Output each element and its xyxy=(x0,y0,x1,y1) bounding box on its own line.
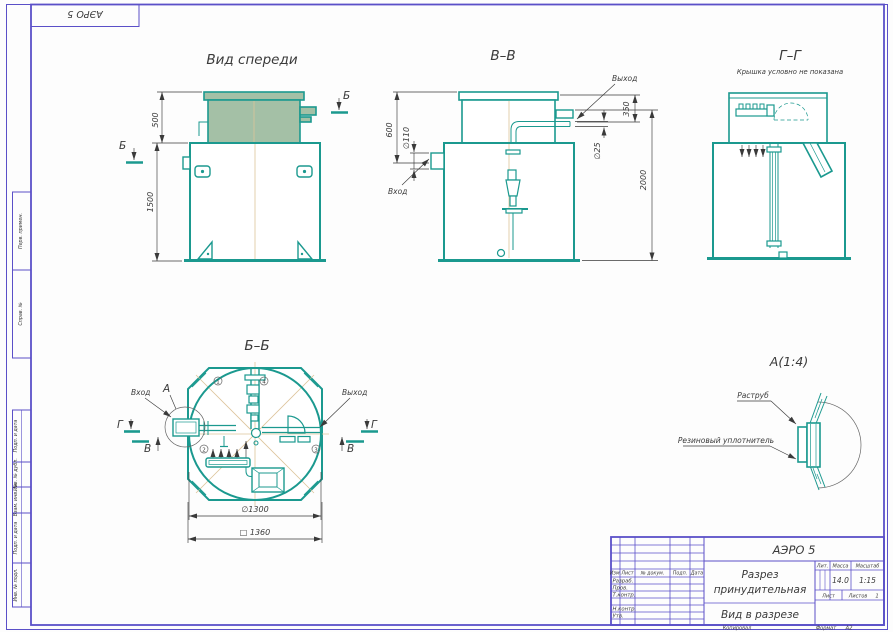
section-mark-b-right: Б xyxy=(343,90,350,102)
format-label: Формат xyxy=(816,626,837,632)
listov-label: Листов xyxy=(848,594,868,600)
front-dim-500: 500 xyxy=(151,112,160,127)
titleblock-name-line1: Разрез xyxy=(741,569,778,581)
row-razrab: Разраб. xyxy=(613,579,634,585)
vv-outlet-label: Выход xyxy=(612,74,637,83)
sheet-svg: АЭРО 5 Перв. примен. Справ. № Подп. и да… xyxy=(0,0,893,632)
mark-g-right: Г xyxy=(371,419,378,431)
vv-dim-d110: ∅110 xyxy=(402,127,411,149)
detail-a-title: А(1:4) xyxy=(769,354,808,369)
listov-value: 1 xyxy=(875,594,878,600)
callout-3: 2 xyxy=(202,448,206,454)
bb-dim-1360: □ 1360 xyxy=(240,528,270,537)
view-section-vv: В–В 600 ∅110 350 xyxy=(385,48,658,261)
margin-label: Справ. № xyxy=(18,302,24,325)
b b-detail-mark-a: А xyxy=(162,383,170,395)
list-label: Лист xyxy=(821,594,836,600)
top-stamp-text: АЭРО 5 xyxy=(67,8,103,19)
mark-g-left: Г xyxy=(117,419,124,431)
titleblock-view-name: Вид в разрезе xyxy=(721,609,799,621)
detail-seal-label: Резиновый уплотнитель xyxy=(678,436,774,445)
margin-label: Перв. примен. xyxy=(18,213,24,249)
masshtab-label: Масштаб xyxy=(856,564,880,570)
title-block: АЭРО 5 Разрез принудительная Вид в разре… xyxy=(610,537,884,632)
bb-inlet-label: Вход xyxy=(131,388,150,397)
callout-1: 1 xyxy=(216,380,220,386)
vv-dim-350: 350 xyxy=(622,101,631,116)
margin-label: Инв. № подл. xyxy=(13,568,19,601)
titleblock-doc-name: АЭРО 5 xyxy=(772,543,816,557)
lit-label: Лит. xyxy=(816,564,829,570)
margin-label: Подп. и дата xyxy=(13,420,19,453)
col-doc: № докум. xyxy=(640,571,665,577)
view-section-bb-plan: Б–Б xyxy=(117,338,378,543)
kopiroval-label: Копировал xyxy=(723,626,752,632)
view-front: Вид спереди 500 1500 Б Б xyxy=(119,52,350,261)
view-section-gg: Г–Г Крышка условно не показана xyxy=(707,48,851,259)
row-nkontr: Н.контр. xyxy=(613,607,637,613)
mark-v-right: В xyxy=(347,443,354,455)
mark-v-left: В xyxy=(144,443,151,455)
vv-dim-600: 600 xyxy=(385,122,394,137)
vv-inlet-label: Вход xyxy=(388,187,407,196)
callout-2: 4 xyxy=(262,380,266,386)
row-prov: Пров. xyxy=(613,586,628,592)
drawing-sheet: АЭРО 5 Перв. примен. Справ. № Подп. и да… xyxy=(0,0,893,632)
section-mark-b-left: Б xyxy=(119,140,126,152)
margin-column: Перв. примен. Справ. № Подп. и дата Инв.… xyxy=(13,192,32,607)
vv-dim-2000: 2000 xyxy=(639,170,648,190)
col-list: Лист xyxy=(620,571,633,577)
bb-title: Б–Б xyxy=(244,338,269,354)
col-data: Дата xyxy=(690,571,703,577)
margin-label: Взам. инв. № xyxy=(13,484,19,517)
gg-title: Г–Г xyxy=(779,48,802,64)
callout-4: 3 xyxy=(314,448,318,454)
margin-label: Подп. и дата xyxy=(13,522,19,555)
front-dim-1500: 1500 xyxy=(146,192,155,212)
vv-dim-d25: ∅25 xyxy=(593,142,602,159)
view-detail-a: А(1:4) Раструб Резиновый уплотнитель xyxy=(678,354,861,490)
col-podp: Подп. xyxy=(673,571,688,577)
gg-note: Крышка условно не показана xyxy=(737,68,843,76)
titleblock-name-line2: принудительная xyxy=(714,584,807,596)
front-view-title: Вид спереди xyxy=(206,52,297,68)
detail-socket-label: Раструб xyxy=(737,391,769,400)
col-izm: Изм. xyxy=(610,571,621,577)
massa-label: Масса xyxy=(833,564,849,570)
format-value: А2 xyxy=(845,626,854,632)
masshtab-value: 1:15 xyxy=(859,576,876,585)
massa-value: 14.0 xyxy=(832,576,849,585)
vv-title: В–В xyxy=(490,48,515,64)
bb-dim-d1300: ∅1300 xyxy=(241,505,268,514)
bb-outlet-label: Выход xyxy=(342,388,367,397)
row-tkontr: Т.контр. xyxy=(613,593,636,599)
row-utv: Утв. xyxy=(613,614,624,620)
